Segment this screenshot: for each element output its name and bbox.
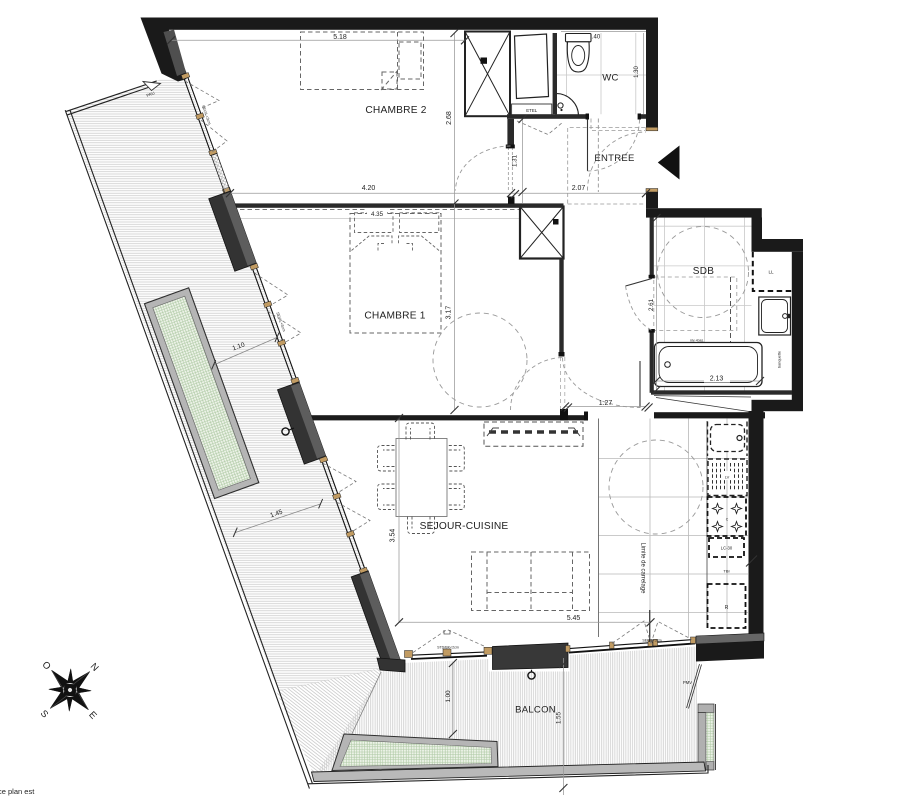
svg-text:2.13: 2.13 (710, 376, 724, 383)
svg-text:BALCON: BALCON (515, 705, 556, 716)
svg-text:3.17: 3.17 (446, 306, 453, 320)
svg-text:CHAMBRE 1: CHAMBRE 1 (364, 311, 425, 322)
svg-text:2.68: 2.68 (446, 111, 453, 125)
svg-text:WC: WC (602, 73, 618, 84)
svg-text:1.00: 1.00 (445, 690, 452, 703)
svg-text:4.20: 4.20 (362, 185, 376, 192)
svg-text:ce plan est: ce plan est (0, 787, 35, 796)
svg-text:R: R (725, 605, 729, 611)
svg-text:1.27: 1.27 (599, 400, 613, 407)
svg-text:STD/BK<2cm: STD/BK<2cm (437, 646, 459, 650)
svg-text:1.31: 1.31 (512, 154, 519, 167)
svg-text:1.55: 1.55 (555, 711, 562, 724)
svg-text:1.30: 1.30 (634, 66, 640, 78)
svg-text:5.18: 5.18 (333, 34, 347, 41)
svg-text:ETEL: ETEL (526, 108, 538, 113)
svg-text:SEJOUR-CUISINE: SEJOUR-CUISINE (420, 521, 509, 532)
svg-text:LL: LL (768, 270, 774, 275)
svg-text:5.45: 5.45 (567, 615, 581, 622)
svg-text:CHAMBRE 2: CHAMBRE 2 (365, 105, 426, 116)
svg-text:2.07: 2.07 (572, 185, 586, 192)
svg-text:LC-30: LC-30 (721, 546, 733, 551)
svg-text:.40: .40 (592, 35, 601, 41)
svg-text:ENTREE: ENTREE (594, 153, 634, 164)
svg-text:Limite de carrelage: Limite de carrelage (640, 542, 646, 594)
svg-text:niv.+bas.: niv.+bas. (690, 339, 704, 343)
svg-text:4.35: 4.35 (371, 211, 384, 218)
svg-text:3.54: 3.54 (390, 529, 397, 543)
svg-text:SEUIL<3cm: SEUIL<3cm (642, 639, 661, 643)
svg-text:2.61: 2.61 (648, 298, 655, 311)
svg-text:LV: LV (725, 475, 730, 480)
svg-text:PMV: PMV (683, 680, 692, 685)
svg-text:TBI: TBI (723, 569, 729, 574)
svg-text:SDB: SDB (693, 266, 714, 277)
svg-text:banquette: banquette (778, 351, 782, 368)
